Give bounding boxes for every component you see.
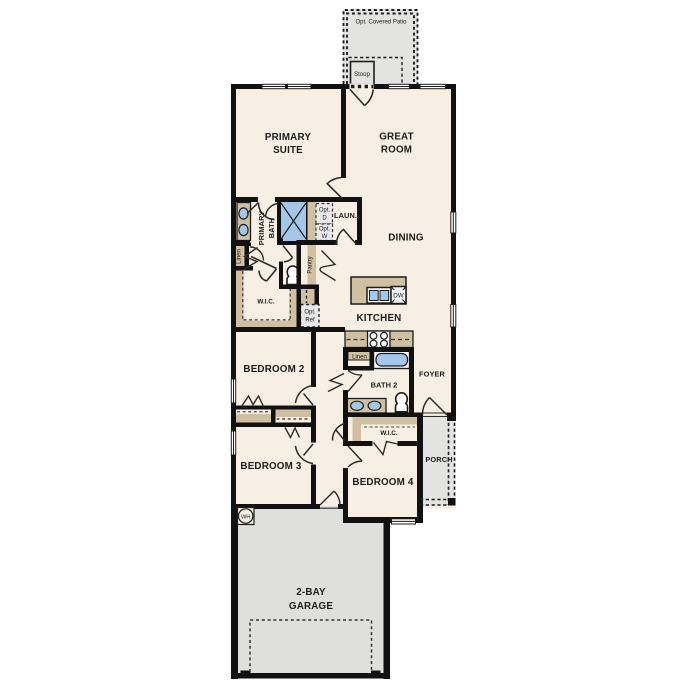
svg-text:PORCH: PORCH — [425, 455, 452, 464]
svg-text:GARAGE: GARAGE — [289, 601, 333, 612]
svg-text:GREAT: GREAT — [379, 132, 414, 143]
svg-text:DW: DW — [393, 293, 404, 300]
svg-text:PRIMARY: PRIMARY — [265, 132, 311, 143]
svg-text:BATH 2: BATH 2 — [371, 381, 398, 390]
svg-text:FOYER: FOYER — [419, 370, 446, 379]
svg-text:ROOM: ROOM — [381, 145, 412, 156]
svg-text:D: D — [322, 216, 327, 222]
svg-text:W.I.C.: W.I.C. — [380, 430, 397, 437]
svg-text:Stoop: Stoop — [354, 72, 370, 78]
svg-text:PRIMARY: PRIMARY — [257, 211, 266, 246]
svg-text:2-BAY: 2-BAY — [296, 587, 326, 598]
svg-text:BEDROOM 4: BEDROOM 4 — [352, 477, 413, 488]
svg-text:W: W — [322, 234, 328, 240]
svg-text:SUITE: SUITE — [273, 145, 303, 156]
svg-text:LAUN.: LAUN. — [334, 211, 357, 220]
svg-text:DINING: DINING — [388, 233, 424, 244]
svg-text:BEDROOM 3: BEDROOM 3 — [240, 461, 301, 472]
svg-text:Ref: Ref — [305, 318, 315, 324]
svg-text:KITCHEN: KITCHEN — [357, 313, 402, 324]
svg-text:Opt.: Opt. — [319, 208, 331, 214]
svg-text:W.I.C.: W.I.C. — [257, 299, 274, 306]
svg-text:BATH: BATH — [267, 218, 276, 238]
svg-text:Pantry: Pantry — [308, 256, 314, 273]
svg-text:Opt.: Opt. — [319, 227, 331, 233]
svg-text:Linen: Linen — [237, 249, 243, 264]
svg-text:Linen: Linen — [352, 355, 367, 361]
svg-text:Opt. Covered Patio: Opt. Covered Patio — [355, 20, 407, 26]
svg-text:WH: WH — [241, 514, 250, 520]
svg-text:Opt.: Opt. — [304, 310, 316, 316]
svg-text:BEDROOM 2: BEDROOM 2 — [243, 364, 304, 375]
